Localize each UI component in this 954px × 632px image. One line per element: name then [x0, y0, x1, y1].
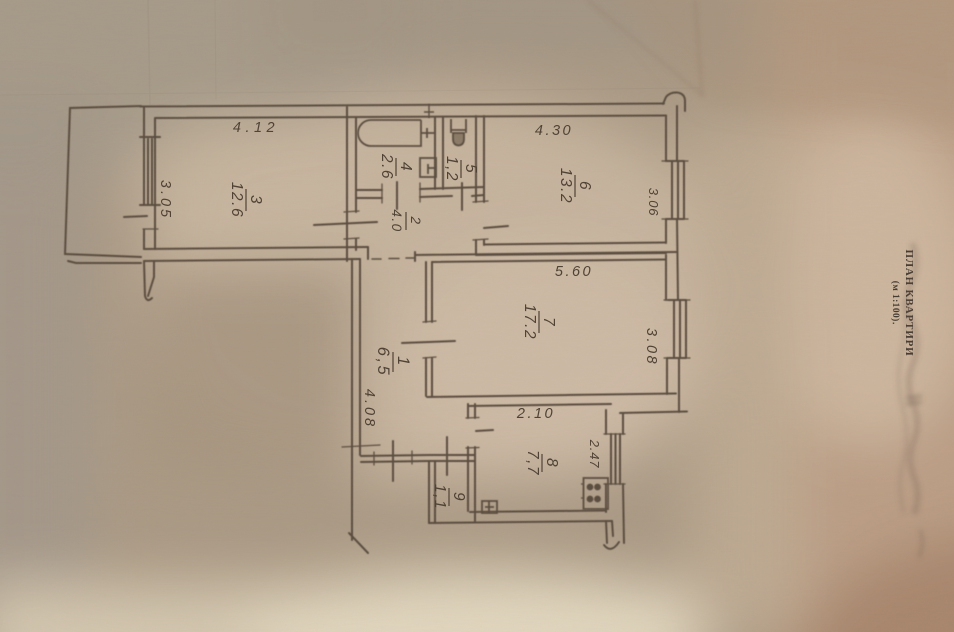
svg-text:5.60: 5.60	[555, 264, 593, 280]
svg-text:1,1: 1,1	[431, 484, 448, 510]
svg-text:2.47: 2.47	[587, 439, 602, 469]
svg-text:(м 1:100)․: (м 1:100)․	[890, 281, 901, 326]
svg-text:3: 3	[247, 195, 264, 205]
svg-text:1,2: 1,2	[443, 156, 460, 182]
svg-text:6: 6	[576, 181, 593, 191]
svg-text:1: 1	[394, 356, 412, 368]
svg-text:8: 8	[543, 458, 560, 468]
svg-text:7: 7	[540, 317, 557, 327]
svg-text:4.12: 4.12	[233, 120, 279, 136]
svg-text:13.2: 13.2	[557, 168, 574, 204]
svg-text:4.08: 4.08	[361, 389, 377, 429]
svg-text:2.10: 2.10	[516, 406, 555, 422]
svg-text:4.30: 4.30	[535, 123, 573, 139]
svg-text:9: 9	[450, 492, 467, 502]
svg-text:4.0: 4.0	[389, 209, 404, 232]
svg-text:7,7: 7,7	[524, 450, 541, 476]
svg-text:5: 5	[462, 164, 479, 174]
svg-text:3.08: 3.08	[643, 328, 659, 366]
svg-text:2: 2	[408, 215, 423, 225]
svg-text:12.6: 12.6	[228, 182, 245, 218]
svg-text:4: 4	[397, 162, 414, 172]
svg-text:17.2: 17.2	[521, 304, 538, 340]
svg-text:3.06: 3.06	[646, 188, 661, 217]
svg-text:2.6: 2.6	[378, 153, 395, 180]
svg-text:6,5: 6,5	[374, 347, 392, 377]
svg-text:3.05: 3.05	[157, 180, 173, 220]
